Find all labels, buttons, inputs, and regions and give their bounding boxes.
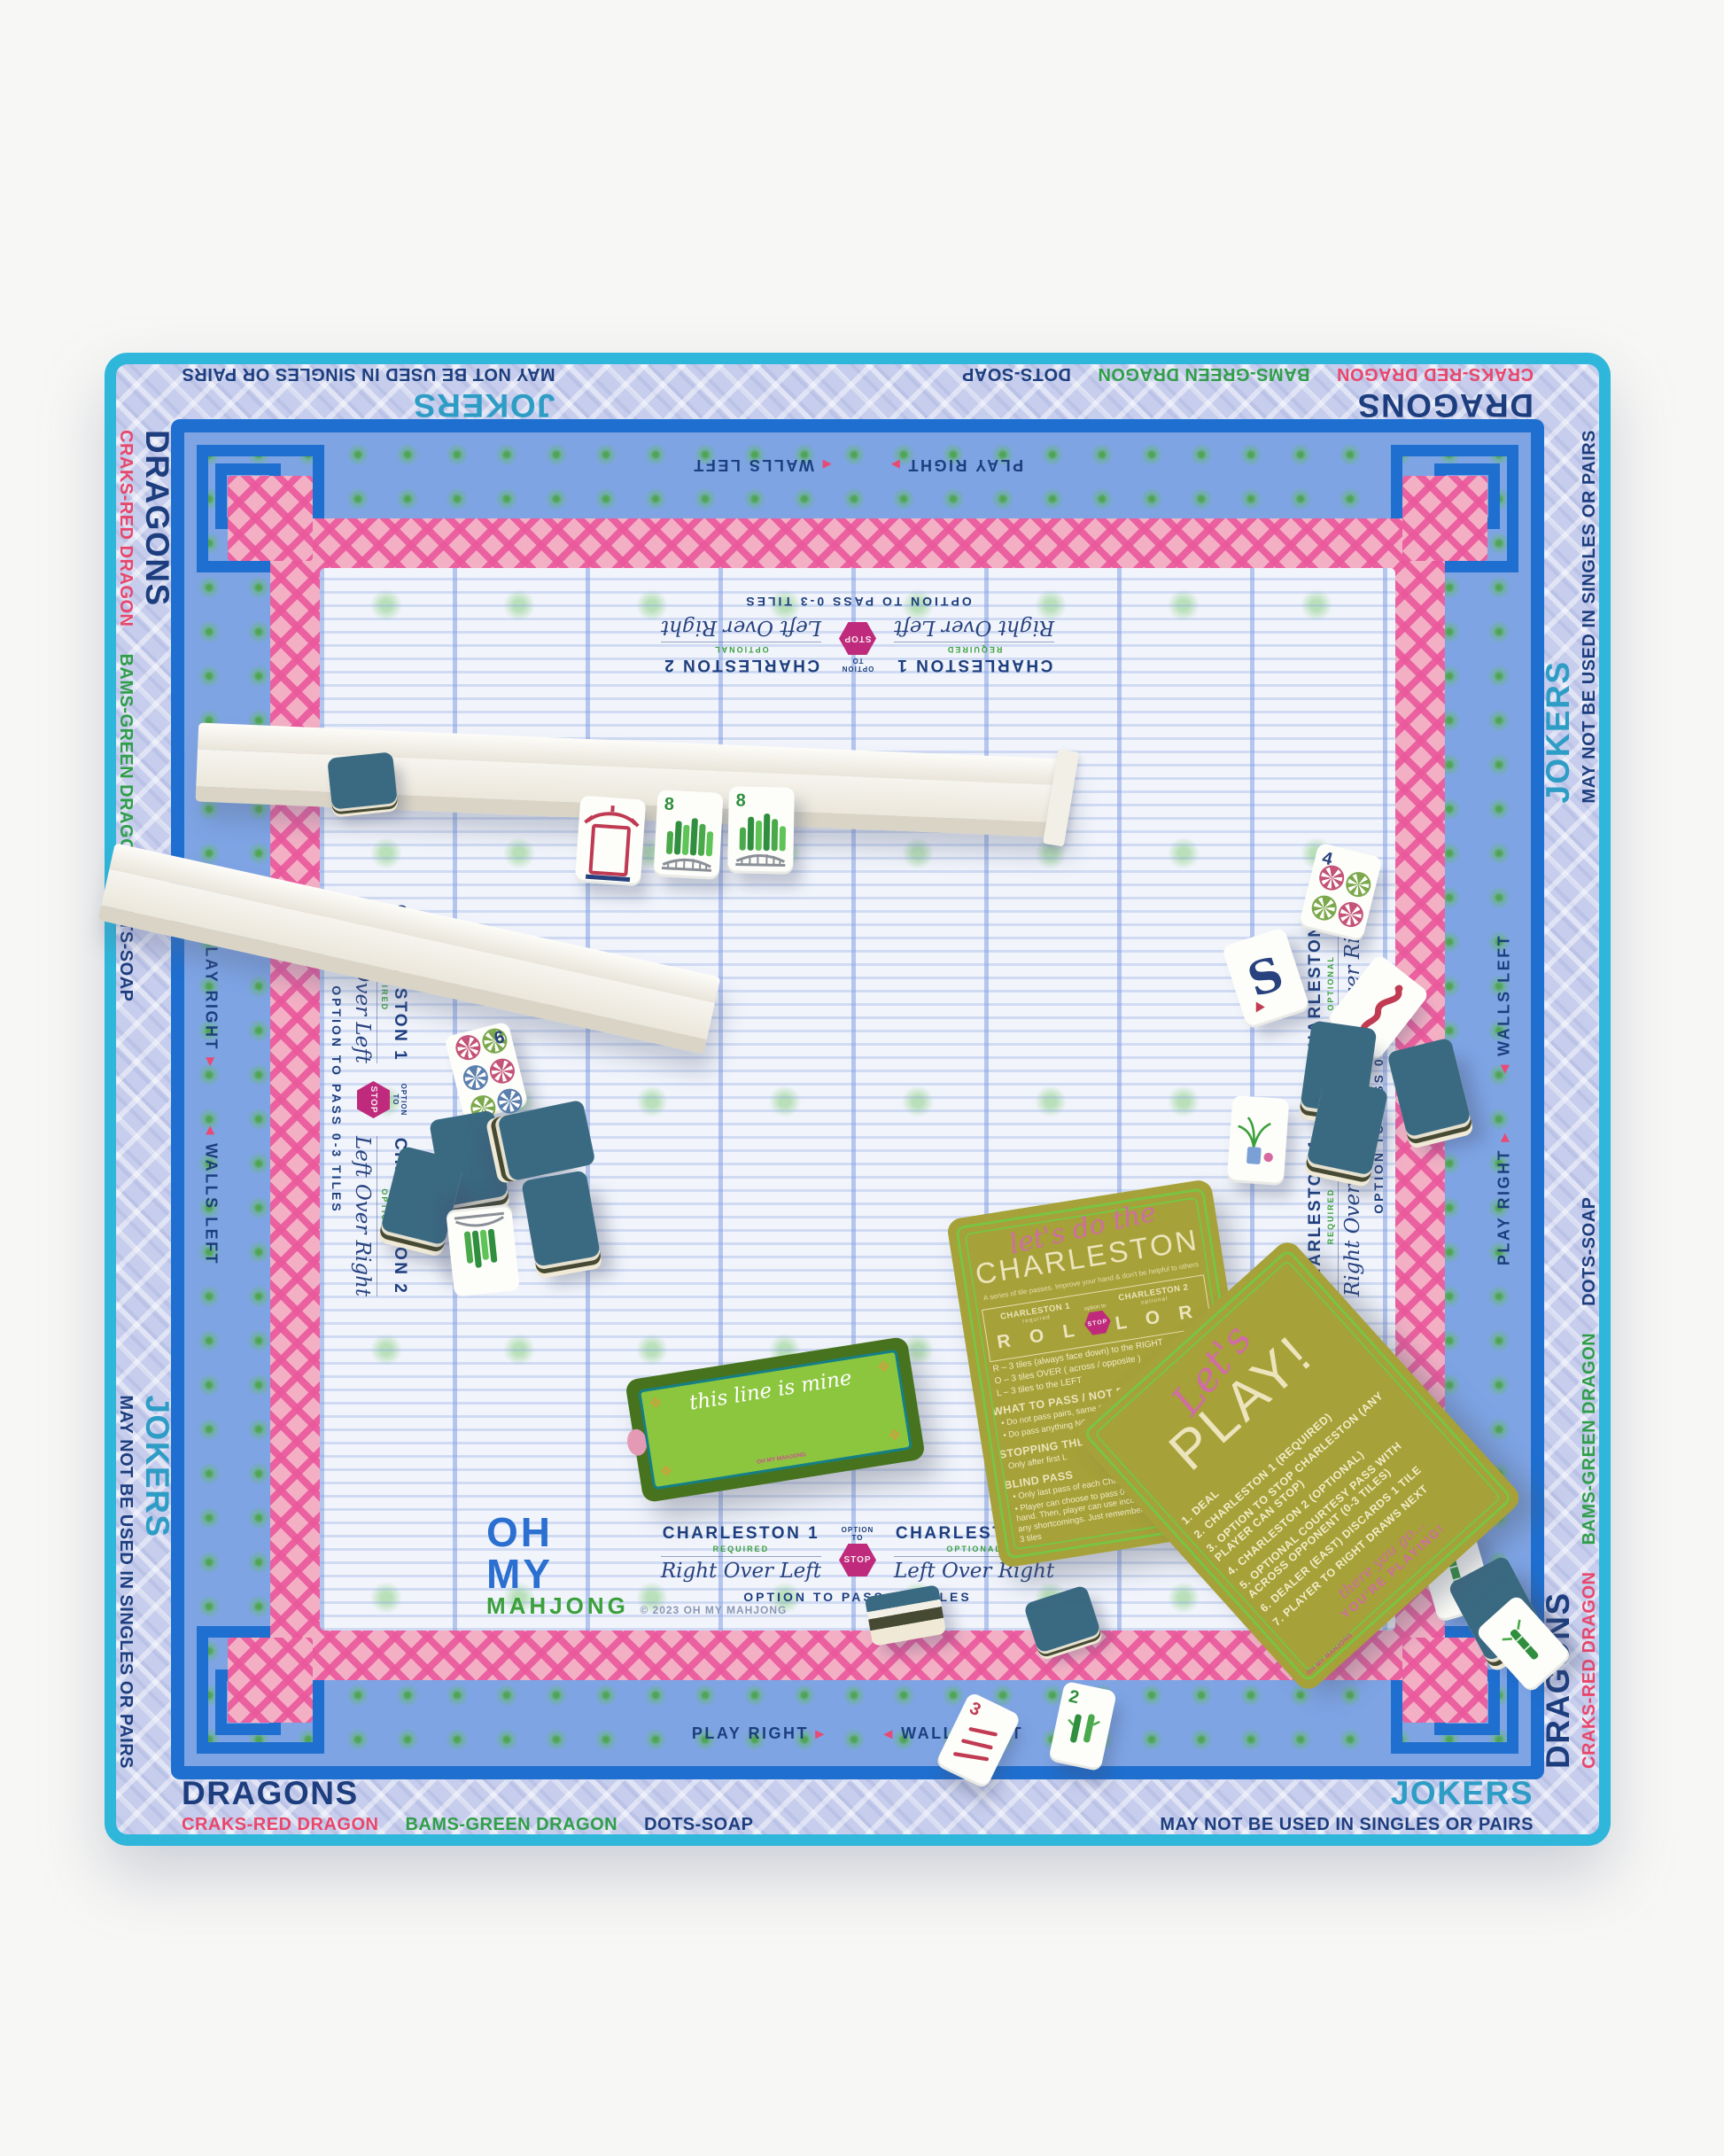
oh-my-mahjong-logo: OH MY MAHJONG © 2023 OH MY MAHJONG [486,1512,787,1618]
eight-bam-icon [446,1203,520,1296]
charleston2-sub: OPTIONAL [946,1545,1002,1553]
option-to-label: OPTION TO [839,657,876,673]
jokers-label-group: JOKERS MAY NOT BE USED IN SINGLES OR PAI… [115,1395,175,1769]
stop-hexagon-icon: STOP [1083,1310,1113,1336]
charleston-block-top: CHARLESTON 1REQUIREDRight Over Left OPTI… [693,595,1022,674]
dragons-notes: CRAKS-RED DRAGON BAMS-GREEN DRAGON DOTS-… [962,363,1534,384]
jokers-label-group: JOKERS MAY NOT BE USED IN SINGLES OR PAI… [1540,430,1600,804]
direction-labels-left: PLAY RIGHT ▸ ◂ WALLS LEFT [202,933,221,1265]
diagram-option-to: option to [1083,1303,1107,1312]
jokers-note: MAY NOT BE USED IN SINGLES OR PAIRS [115,1395,136,1769]
pink-step-corner [1402,1638,1487,1723]
tile-eight-bam-flipped [446,1203,520,1296]
tile-flower [1227,1095,1290,1186]
tile-eight-bam: 8 [727,786,795,874]
pip-icon [453,1032,483,1062]
four-dot-pips [1309,863,1371,929]
knot-icon: ❖ [648,1394,664,1413]
left-arrow-icon: ◂ [1495,1062,1513,1073]
play-right-label: PLAY RIGHT ▸ [692,1724,826,1743]
pip-icon [1309,893,1340,923]
mat-edge-right: DRAGONS CRAKS-RED DRAGON BAMS-GREEN DRAG… [1541,364,1599,1834]
bams-note: BAMS-GREEN DRAGON [115,653,136,866]
charleston2-sub: OPTIONAL [1326,955,1335,1011]
mat-edge-top: DRAGONS CRAKS-RED DRAGON BAMS-GREEN DRAG… [116,364,1599,423]
craks-note: CRAKS-RED DRAGON [1580,1572,1600,1769]
tile-number: 8 [735,791,746,812]
left-arrow-icon: ◂ [820,456,831,474]
south-wind-letter: S [1241,946,1290,1008]
pass-note: OPTION TO PASS 0-3 TILES [693,595,1022,609]
dragons-label: DRAGONS [182,1775,753,1812]
craks-note: CRAKS-RED DRAGON [182,1815,378,1835]
charleston1-sub: REQUIRED [1326,1187,1335,1244]
pip-icon [1336,899,1366,930]
pip-icon [487,1056,517,1086]
knot-icon: ❖ [876,1358,892,1377]
bams-note: BAMS-GREEN DRAGON [1580,1333,1600,1545]
charleston1-sub: REQUIRED [946,645,1003,654]
jokers-label: JOKERS [1391,1775,1534,1812]
gate-flower-icon [575,796,647,887]
stop-sign-group: OPTION TO STOP [839,1524,876,1576]
wind-accent-icon [1256,1002,1265,1013]
charleston1-script: Right Over Left [894,616,1054,642]
jokers-label: JOKERS [182,386,555,424]
pink-step-corner [228,476,313,561]
bams-note: BAMS-GREEN DRAGON [405,1815,617,1835]
pip-icon [461,1062,491,1093]
logo-copyright: © 2023 OH MY MAHJONG [640,1604,787,1616]
craks-note: CRAKS-RED DRAGON [115,430,136,627]
logo-mahjong: MAHJONG [486,1592,629,1619]
play-right-label: PLAY RIGHT ▸ [889,455,1023,474]
stop-hexagon-icon: STOP [839,622,876,655]
tile-gate-flower [575,796,647,887]
product-photo: DRAGONS CRAKS-RED DRAGON BAMS-GREEN DRAG… [0,0,1724,2156]
charleston2-sub: OPTIONAL [713,645,769,654]
tile-number: 8 [664,795,674,816]
dots-note: DOTS-SOAP [1580,1197,1600,1306]
knot-icon: ❖ [887,1426,903,1445]
right-arrow-icon: ▸ [1495,1131,1513,1141]
pink-step-corner [1402,476,1487,561]
jokers-label: JOKERS [138,1395,175,1769]
dragons-label-group: DRAGONS CRAKS-RED DRAGON BAMS-GREEN DRAG… [962,363,1534,424]
right-arrow-icon: ▸ [815,1724,826,1742]
play-right-label: PLAY RIGHT ▸ [1495,1131,1514,1265]
diagram-charleston1: CHARLESTON 1 required R O L [989,1299,1087,1354]
tile-back [327,751,398,809]
jokers-label-group: JOKERS MAY NOT BE USED IN SINGLES OR PAI… [182,363,555,424]
option-to-label: OPTION TO [392,1081,408,1118]
card-mini-logo: OH MY MAHJONG [757,1452,807,1466]
dragons-label-group: DRAGONS CRAKS-RED DRAGON BAMS-GREEN DRAG… [1540,1197,1600,1769]
dragons-label: DRAGONS [1540,1197,1577,1769]
left-arrow-icon: ◂ [884,1724,895,1742]
tile-eight-bam: 8 [653,790,723,880]
stop-hexagon-icon: STOP [357,1081,390,1118]
charleston1-title: CHARLESTON 1 [896,655,1052,674]
dragons-notes: CRAKS-RED DRAGON BAMS-GREEN DRAGON DOTS-… [1580,1197,1600,1769]
six-dot-pips [453,1027,521,1123]
left-arrow-icon: ◂ [203,1126,221,1137]
right-arrow-icon: ▸ [889,456,900,474]
walls-left-label: ◂ WALLS LEFT [692,455,831,474]
craks-note: CRAKS-RED DRAGON [1337,363,1534,384]
pip-icon [1343,869,1373,899]
pink-step-corner [228,1638,313,1723]
jokers-label: JOKERS [1540,430,1577,804]
charleston2-script: Left Over Right [351,1136,377,1296]
knot-icon: ❖ [658,1462,674,1482]
direction-labels-top: PLAY RIGHT ▸ ◂ WALLS LEFT [692,455,1023,474]
bams-note: BAMS-GREEN DRAGON [1098,363,1310,384]
right-arrow-icon: ▸ [203,1057,221,1068]
stop-hexagon-icon: STOP [839,1544,876,1576]
jokers-note: MAY NOT BE USED IN SINGLES OR PAIRS [1160,1815,1534,1835]
dragons-notes: CRAKS-RED DRAGON BAMS-GREEN DRAGON DOTS-… [182,1815,753,1835]
logo-oh: OH [486,1512,787,1553]
walls-left-label: ◂ WALLS LEFT [202,1126,221,1265]
option-to-label: OPTION TO [839,1526,876,1542]
charleston2-title: CHARLESTON 2 [663,655,819,674]
play-right-label: PLAY RIGHT ▸ [202,933,221,1067]
charleston2-script: Left Over Right [661,616,821,642]
dragons-label-group: DRAGONS CRAKS-RED DRAGON BAMS-GREEN DRAG… [182,1775,753,1835]
direction-labels-right: PLAY RIGHT ▸ ◂ WALLS LEFT [1495,933,1514,1265]
diagram-c1-letters: R O L [996,1319,1083,1354]
dragons-label: DRAGONS [962,386,1534,424]
mat-edge-bottom: DRAGONS CRAKS-RED DRAGON BAMS-GREEN DRAG… [116,1776,1599,1834]
jokers-note: MAY NOT BE USED IN SINGLES OR PAIRS [182,363,555,384]
dots-note: DOTS-SOAP [962,363,1071,384]
logo-my: MY [486,1553,787,1595]
jokers-label-group: JOKERS MAY NOT BE USED IN SINGLES OR PAI… [1160,1775,1534,1835]
jokers-note: MAY NOT BE USED IN SINGLES OR PAIRS [1580,430,1600,804]
walls-left-label: ◂ WALLS LEFT [1495,933,1514,1072]
pass-note: OPTION TO PASS 0-3 TILES [330,935,344,1265]
mat-edge-left: DRAGONS CRAKS-RED DRAGON BAMS-GREEN DRAG… [116,364,175,1834]
flower-icon [1227,1095,1290,1186]
dots-note: DOTS-SOAP [644,1815,753,1835]
